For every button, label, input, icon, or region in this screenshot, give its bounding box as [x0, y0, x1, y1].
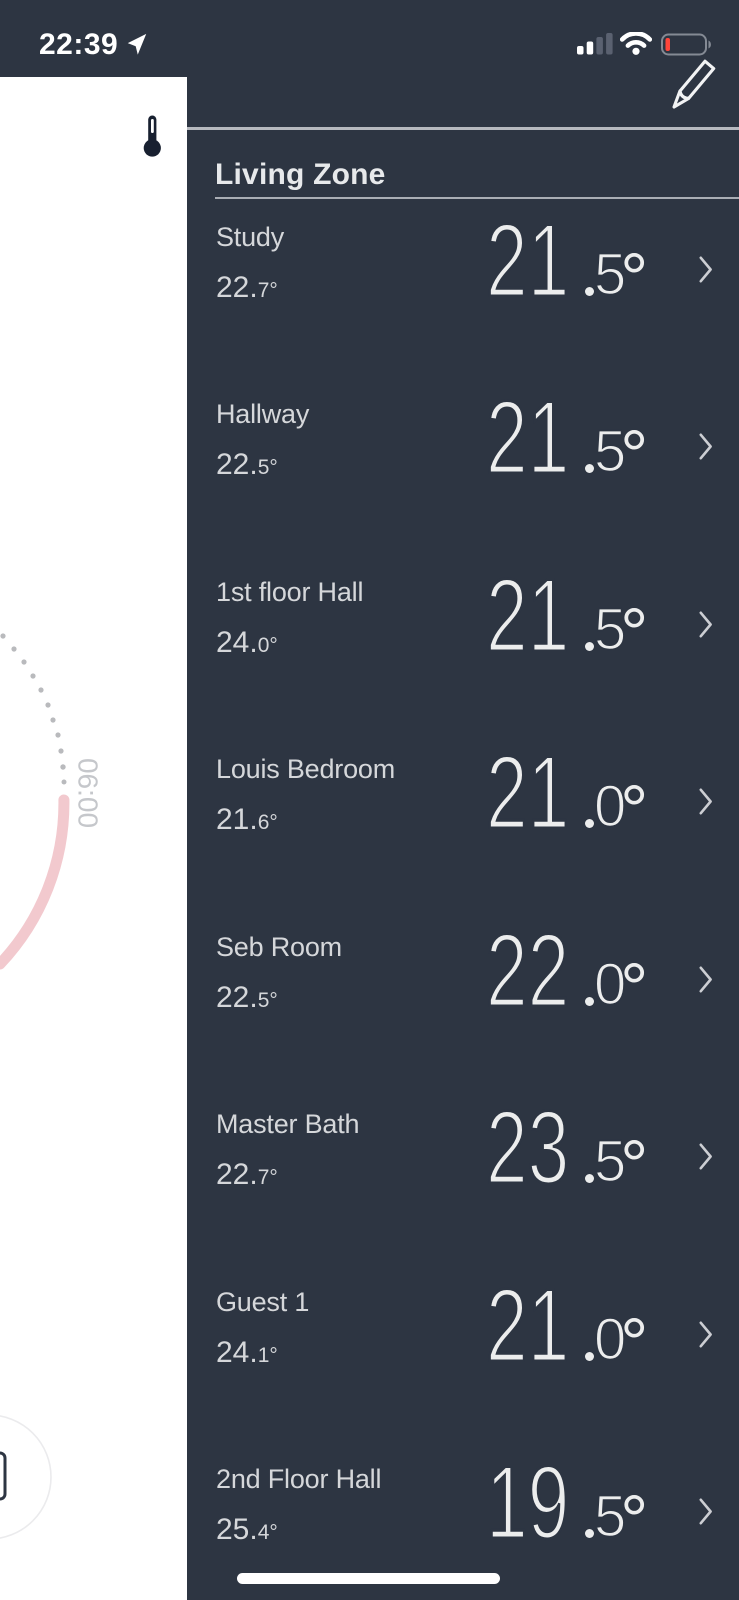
svg-text:06:00: 06:00 [73, 758, 104, 828]
